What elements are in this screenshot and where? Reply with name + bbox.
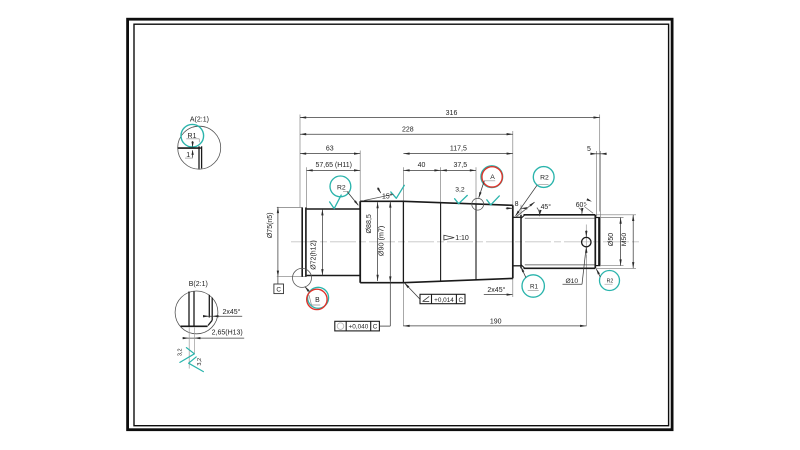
svg-text:R2: R2 (540, 175, 549, 182)
svg-text:C: C (373, 324, 378, 331)
svg-text:B(2:1): B(2:1) (189, 281, 208, 288)
svg-text:2x45°: 2x45° (487, 286, 505, 294)
svg-text:M50: M50 (621, 233, 628, 246)
svg-text:C: C (458, 297, 463, 304)
svg-text:3,2: 3,2 (455, 187, 465, 194)
svg-text:37,5: 37,5 (453, 162, 467, 169)
svg-text:3,2: 3,2 (197, 358, 203, 366)
svg-text:3,2: 3,2 (178, 348, 184, 356)
svg-text:45°: 45° (541, 203, 552, 211)
svg-text:R1: R1 (530, 284, 539, 291)
svg-text:Ø10: Ø10 (565, 278, 578, 285)
svg-text:15°: 15° (382, 192, 393, 200)
svg-text:B: B (315, 297, 320, 304)
svg-text:228: 228 (402, 126, 414, 133)
svg-text:60°: 60° (576, 201, 587, 209)
svg-text:Ø50: Ø50 (608, 233, 615, 246)
svg-text:117,5: 117,5 (450, 145, 467, 152)
svg-text:Ø75(n5): Ø75(n5) (267, 212, 274, 238)
svg-text:1:10: 1:10 (455, 235, 469, 242)
svg-text:+0,040: +0,040 (349, 324, 369, 331)
svg-text:A: A (490, 174, 495, 181)
svg-text:R2: R2 (607, 279, 614, 285)
svg-text:57,65 (H11): 57,65 (H11) (315, 162, 351, 169)
svg-text:8: 8 (515, 201, 519, 208)
svg-text:40: 40 (418, 162, 426, 169)
svg-text:316: 316 (446, 110, 458, 117)
svg-text:Ø72(h12): Ø72(h12) (311, 240, 318, 270)
svg-text:2,65(H13): 2,65(H13) (212, 330, 243, 337)
svg-text:+0,014: +0,014 (434, 297, 454, 304)
svg-text:5: 5 (587, 146, 591, 153)
svg-text:2x45°: 2x45° (223, 308, 241, 316)
svg-text:C: C (276, 286, 281, 293)
svg-text:63: 63 (326, 145, 334, 152)
svg-text:190: 190 (490, 319, 502, 326)
svg-text:Ø88,5: Ø88,5 (365, 214, 373, 233)
svg-text:A(2:1): A(2:1) (190, 117, 209, 124)
svg-text:R2: R2 (337, 185, 346, 192)
svg-text:Ø90 (m7): Ø90 (m7) (377, 226, 386, 256)
